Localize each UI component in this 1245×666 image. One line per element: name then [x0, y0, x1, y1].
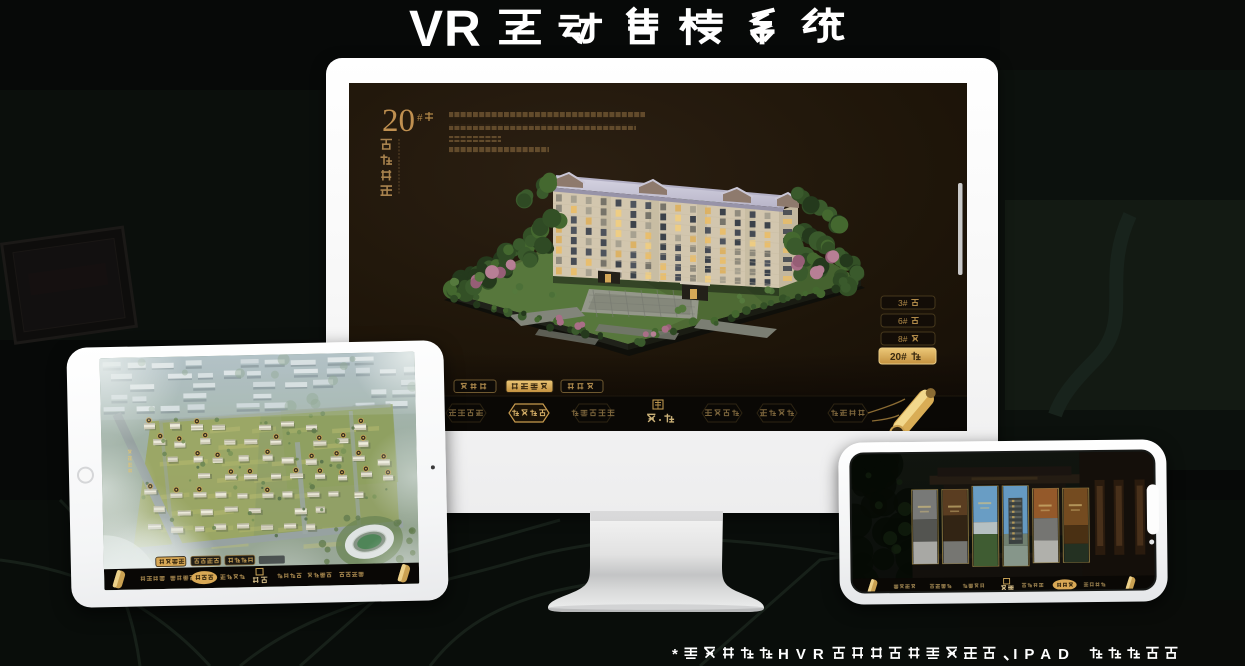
svg-text:*: * — [672, 646, 685, 663]
svg-text:3#: 3# — [898, 298, 908, 308]
svg-text:8#: 8# — [898, 334, 908, 344]
svg-text:IPAD: IPAD — [1013, 646, 1076, 663]
svg-text:20: 20 — [382, 103, 415, 139]
svg-text:6#: 6# — [898, 316, 908, 326]
svg-text:20#: 20# — [890, 352, 907, 363]
svg-text:#: # — [417, 112, 423, 124]
svg-text:VR: VR — [409, 1, 482, 53]
svg-text:HVR: HVR — [778, 646, 831, 663]
